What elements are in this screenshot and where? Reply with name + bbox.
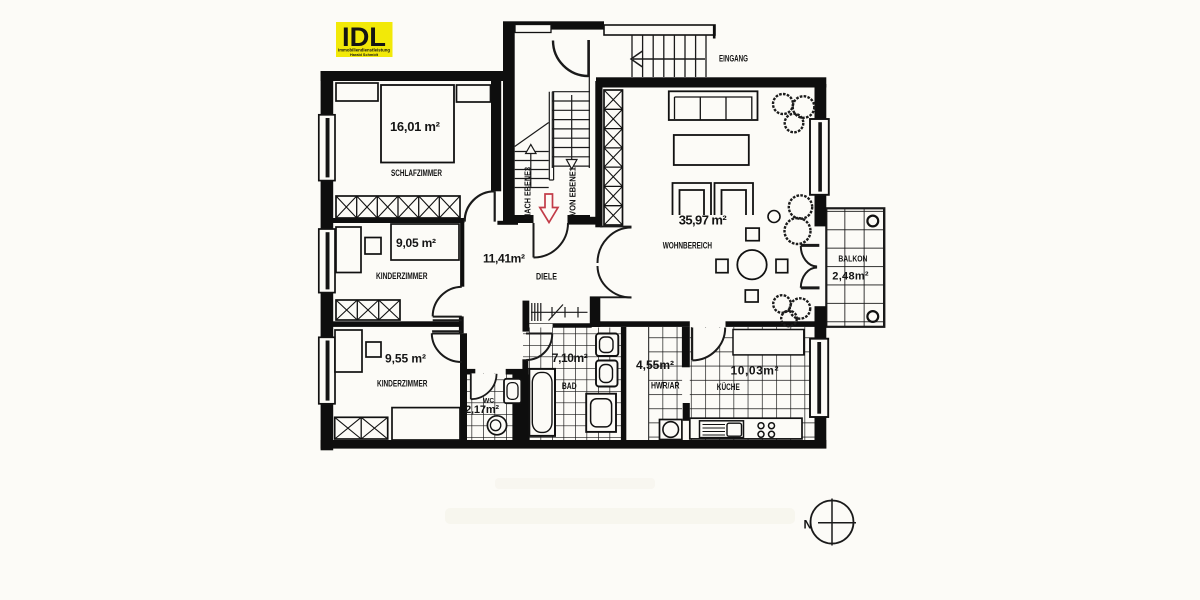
- svg-text:NACH EBENE3: NACH EBENE3: [523, 167, 533, 219]
- svg-text:BALKON: BALKON: [838, 255, 867, 264]
- svg-text:10,03m²: 10,03m²: [731, 363, 779, 377]
- svg-text:Harald Schmidt: Harald Schmidt: [350, 53, 379, 57]
- svg-text:2,48m²: 2,48m²: [832, 271, 869, 283]
- svg-text:N: N: [804, 518, 813, 532]
- svg-text:WOHNBEREICH: WOHNBEREICH: [663, 241, 712, 252]
- svg-text:BAD: BAD: [562, 381, 577, 392]
- svg-text:11,41m²: 11,41m²: [483, 252, 525, 266]
- svg-text:HWR/AR: HWR/AR: [651, 381, 680, 391]
- svg-text:VON EBENE1: VON EBENE1: [568, 167, 578, 216]
- svg-text:Immobiliendienstleistung: Immobiliendienstleistung: [338, 48, 390, 53]
- svg-text:4,55m²: 4,55m²: [636, 358, 674, 372]
- svg-text:SCHLAFZIMMER: SCHLAFZIMMER: [391, 168, 442, 179]
- svg-text:2,17m²: 2,17m²: [465, 404, 499, 416]
- svg-text:35,97 m²: 35,97 m²: [679, 213, 728, 228]
- svg-text:9,05 m²: 9,05 m²: [396, 236, 436, 250]
- svg-text:DIELE: DIELE: [536, 272, 557, 282]
- svg-text:KINDERZIMMER: KINDERZIMMER: [377, 379, 428, 390]
- svg-text:KÜCHE: KÜCHE: [717, 382, 740, 392]
- svg-text:16,01 m²: 16,01 m²: [390, 119, 441, 134]
- svg-text:KINDERZIMMER: KINDERZIMMER: [376, 271, 428, 282]
- svg-text:7,10m²: 7,10m²: [552, 351, 588, 365]
- svg-text:9,55 m²: 9,55 m²: [385, 352, 426, 366]
- svg-text:EINGANG: EINGANG: [719, 54, 748, 64]
